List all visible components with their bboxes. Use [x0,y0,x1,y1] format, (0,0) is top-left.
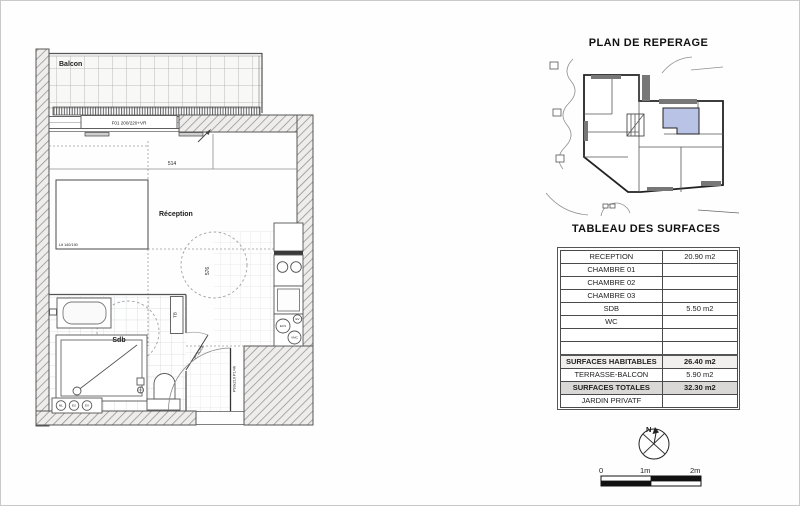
towel-unit-label: TB [173,312,178,318]
surface-table: RECEPTION 20.90 m2 CHAMBRE 01 CHAMBRE 02… [557,247,740,410]
window-label: F01 200/220+VR [112,121,148,126]
surface-value-cell [663,263,737,276]
surface-label-cell: WC [560,315,663,328]
building-outline [584,75,723,192]
surface-label-cell [560,341,663,355]
width-dimension: 514 [168,161,177,167]
surface-value-cell [663,328,737,341]
table-row-habitables: SURFACES HABITABLES 26.40 m2 [560,355,737,369]
bed-label: Lit 140/190 [59,243,78,247]
vmc-label: VMC [291,336,299,340]
table-row: CHAMBRE 02 [560,276,737,289]
surface-value-cell: 26.40 m2 [663,355,737,369]
reception-label: Réception [159,211,193,218]
surface-value-cell: 20.90 m2 [663,250,737,263]
location-mini-plan [526,51,771,221]
kitchenette: ECS EV VMC [274,223,303,346]
floor-plan-sheet: Balcon F01 200/220+VR [0,0,800,506]
ev-label: EV [295,317,299,321]
scale-bar: 0 1m 2m [589,461,749,493]
ev2-label: EV [85,404,89,408]
floor-drain [137,378,144,385]
fridge [274,223,303,251]
entry-door-label: P93x210 P1/4h [233,366,237,392]
balcony-label: Balcon [59,61,82,68]
table-row: CHAMBRE 03 [560,289,737,302]
surface-value-cell: 32.30 m2 [663,381,737,394]
faucet-icon [50,309,57,315]
ml-label: ML [59,404,63,408]
surface-value-cell [663,341,737,355]
table-row: WC [560,315,737,328]
toilet-bowl [154,374,175,399]
surface-label-cell: CHAMBRE 01 [560,263,663,276]
scale-1m-label: 1m [640,466,650,475]
table-row [560,341,737,355]
north-arrow-icon [653,427,660,434]
table-row: RECEPTION 20.90 m2 [560,250,737,263]
table-row: TERRASSE-BALCON 5.90 m2 [560,368,737,381]
surface-value-cell [663,289,737,302]
surface-label-cell: TERRASSE-BALCON [560,368,663,381]
surface-label-cell: SDB [560,302,663,315]
scale-2m-label: 2m [690,466,700,475]
bathroom-label: Sdb [112,337,125,344]
surface-table-title: TABLEAU DES SURFACES [557,223,735,235]
surface-value-cell [663,315,737,328]
table-row: SDB 5.50 m2 [560,302,737,315]
compass: N [629,417,681,463]
surface-label-cell: CHAMBRE 02 [560,276,663,289]
surface-value-cell [663,276,737,289]
surface-label-cell: SURFACES TOTALES [560,381,663,394]
table-row: CHAMBRE 01 [560,263,737,276]
eu-label: EU [72,404,76,408]
surface-label-cell: CHAMBRE 03 [560,289,663,302]
bed: Lit 140/190 [56,180,148,249]
balcony-grating [53,107,260,115]
ecs-label: ECS [280,324,286,328]
apartment-floor-plan: Balcon F01 200/220+VR [1,1,521,506]
surface-value-cell: 5.90 m2 [663,368,737,381]
burner-icon [291,262,302,273]
scale-0-label: 0 [599,466,603,475]
toilet-tank [147,399,180,410]
surface-label-cell: SURFACES HABITABLES [560,355,663,369]
balcony: Balcon [49,53,262,115]
table-row: JARDIN PRIVATF [560,394,737,407]
burner-icon [277,262,288,273]
table-row [560,328,737,341]
north-label: N [646,425,651,434]
surface-value-cell: 5.50 m2 [663,302,737,315]
surface-label-cell: RECEPTION [560,250,663,263]
shower-drain-icon [73,387,81,395]
surface-label-cell [560,328,663,341]
height-dimension: 576 [205,267,211,276]
location-plan-title: PLAN DE REPERAGE [526,37,771,49]
surface-value-cell [663,394,737,407]
surface-label-cell: JARDIN PRIVATF [560,394,663,407]
table-row-totales: SURFACES TOTALES 32.30 m2 [560,381,737,394]
